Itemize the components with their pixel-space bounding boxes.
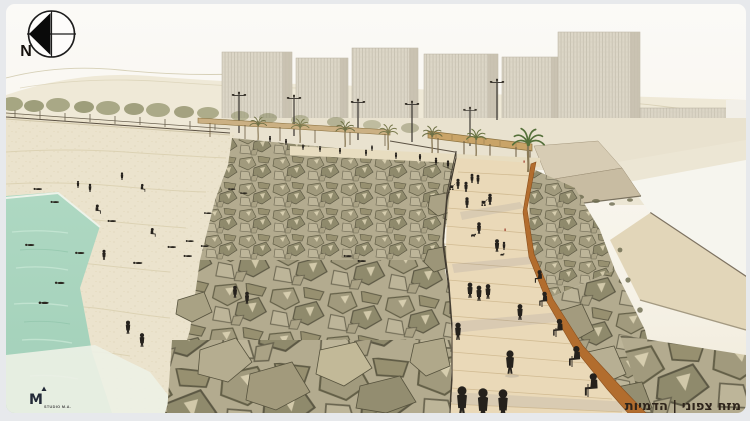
image-caption: מזח צפוני | הדמיות — [625, 399, 741, 413]
rendering-scene: N M STUDIO M.A. מזח צפוני | הדמיות — [6, 4, 746, 413]
north-label: N — [20, 43, 32, 60]
logo-mark: M — [29, 392, 43, 408]
logo-studio-text: STUDIO M.A. — [44, 405, 71, 409]
promenade-rendering-image[interactable]: N M STUDIO M.A. מזח צפוני | הדמיות — [6, 4, 746, 413]
rendering-frame: N M STUDIO M.A. מזח צפוני | הדמיות — [0, 0, 750, 421]
